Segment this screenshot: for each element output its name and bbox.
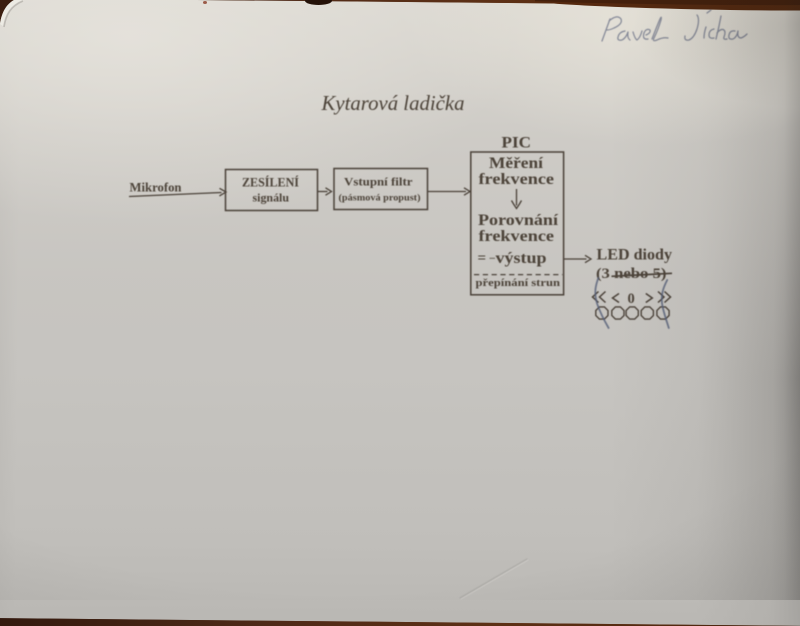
svg-text:signálu: signálu [253,191,290,205]
svg-text:Porovnání: Porovnání [478,212,559,229]
svg-text:LED diody: LED diody [597,247,673,264]
svg-text:0: 0 [628,291,635,307]
svg-text:Vstupní filtr: Vstupní filtr [344,175,413,189]
svg-text:Kytarová ladička: Kytarová ladička [321,91,465,115]
svg-text:(pásmová propust): (pásmová propust) [339,193,421,204]
svg-text:=: = [478,251,487,267]
svg-text:ZESÍLENÍ: ZESÍLENÍ [242,176,299,190]
svg-text:Mikrofon: Mikrofon [130,180,183,195]
svg-text:frekvence: frekvence [479,228,555,245]
svg-text:přepínání strun: přepínání strun [476,278,561,289]
svg-text:PIC: PIC [502,135,532,152]
svg-text:frekvence: frekvence [479,171,555,188]
svg-text:výstup: výstup [496,250,547,267]
svg-text:(3 nebo 5): (3 nebo 5) [596,266,667,282]
svg-text:Měření: Měření [489,155,544,172]
